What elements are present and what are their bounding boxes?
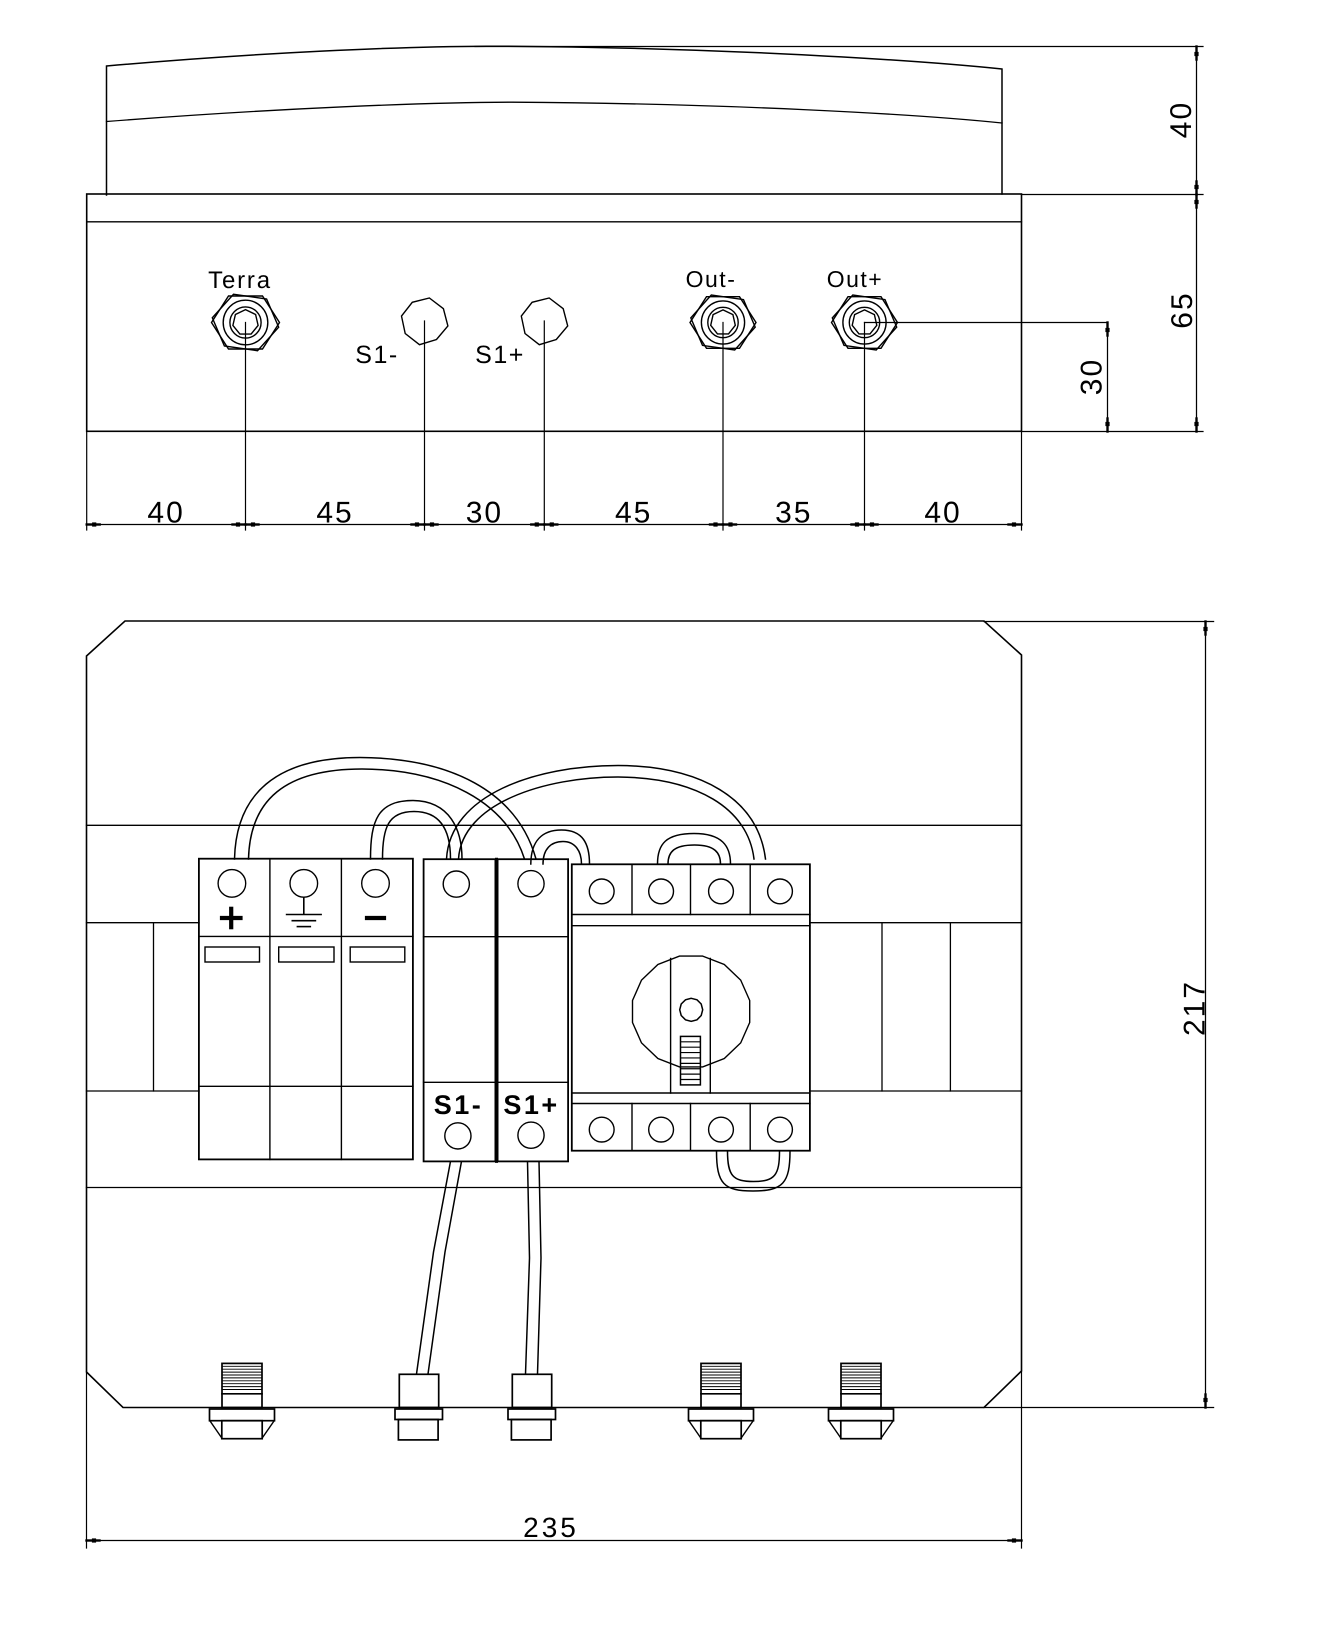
svg-text:S1-: S1- [355, 341, 398, 369]
svg-text:S1+: S1+ [475, 341, 525, 369]
svg-text:S1+: S1+ [503, 1090, 559, 1120]
svg-text:40: 40 [924, 497, 961, 530]
svg-text:35: 35 [775, 497, 812, 530]
svg-text:30: 30 [1076, 358, 1109, 395]
svg-text:S1-: S1- [434, 1090, 484, 1120]
svg-text:65: 65 [1166, 291, 1199, 328]
svg-text:40: 40 [147, 497, 184, 530]
svg-text:45: 45 [316, 497, 353, 530]
svg-text:Out+: Out+ [827, 266, 884, 292]
svg-text:45: 45 [615, 497, 652, 530]
svg-text:30: 30 [466, 497, 503, 530]
svg-text:40: 40 [1165, 101, 1198, 138]
svg-text:235: 235 [523, 1512, 579, 1543]
svg-text:Out-: Out- [686, 266, 737, 292]
svg-text:Terra: Terra [208, 267, 272, 294]
svg-text:217: 217 [1179, 980, 1212, 1036]
